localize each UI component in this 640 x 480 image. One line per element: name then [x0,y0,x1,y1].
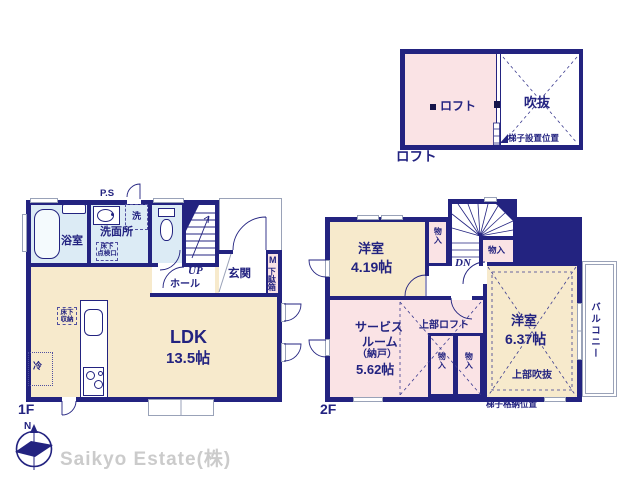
f1-entrance-label: 玄関 [228,268,251,280]
f2-closet-a-label: 物入 [433,227,441,245]
door-gap-entrance [233,250,266,255]
f1-floor-storage-line2: 収納 [61,316,74,323]
f2-service-line3: （納戸） [357,350,397,361]
f2-upper-void-label: 上部吹抜 [512,371,552,382]
door-gap-ldk-bottom [62,397,76,403]
f2-bedroom2-label: 洋室 [511,314,537,328]
f2-service-line4: 5.62帖 [356,363,394,377]
compass-icon [15,424,53,470]
window-toilet-top [153,198,184,203]
kitchen-sink [84,309,103,336]
window-f2-left-1 [325,260,330,277]
door-gap-bedroom2 [483,262,487,284]
window-balcony-door [577,303,582,360]
f1-floor-storage-label: 床下 収納 [57,310,77,324]
window-bedroom2-bottom [544,397,566,402]
loft-room-label: ロフト [440,100,476,113]
window-ldk-right-2 [281,343,286,362]
bath-counter [62,204,86,214]
floor-plan-page: ロフト 吹抜 梯子設置位置 ロフト P.S 浴室 洗 洗面所 床下 点検口 UP… [0,0,640,480]
f1-hatch-line2: 点検口 [97,250,117,257]
f1-shoebox-label: 下駄箱 [267,267,275,291]
f2-balcony-label: バルコニー [589,302,599,360]
bathtub [34,209,60,259]
window-bath-left [22,214,27,252]
f2-service-line2: ルーム [362,336,398,349]
f1-porch [219,198,282,251]
stove-burner-3 [98,371,103,376]
window-bedroom1-top-1 [357,215,379,220]
toilet-tank [158,208,175,217]
f2-service-line1: サービス [355,321,403,334]
window-bath-top [30,198,58,203]
door-gap-service [451,296,472,300]
toilet-bowl [160,219,173,241]
stove-burner-2 [94,380,103,389]
loft-caption: ロフト [396,150,437,164]
f1-fridge-label: 冷 [33,362,42,371]
f2-bedroom1-label: 洋室 [358,242,384,256]
door-gap-bedroom1 [425,276,429,296]
f1-caption: 1F [18,402,34,417]
window-f2-left-2 [325,339,330,356]
door-gap-ps [127,199,141,204]
f1-staircase [186,205,215,263]
window-stair-top [484,197,497,202]
door-gap-hall [158,263,182,267]
window-bedroom1-top-2 [381,215,403,220]
f2-bedroom2-size: 6.37帖 [505,332,546,347]
compass-north-label: N [24,422,31,433]
f1-hall-label: ホール [170,280,200,291]
f1-ldk-size: 13.5帖 [166,351,210,367]
f1-ldk-label: LDK [170,328,207,347]
f1-washroom-label: 洗面所 [100,227,133,239]
f2-closet-b-label: 物入 [488,246,505,255]
f1-hatch-label: 床下 点検口 [96,244,118,258]
f1-bath-label: 浴室 [61,236,83,248]
f2-closet-c-label: 物入 [437,352,445,370]
wash-basin-faucet [111,213,114,216]
f2-caption: 2F [320,402,336,417]
f2-dn-label: DN [455,258,471,270]
f2-ladder-note: 梯子格納位置 [486,400,537,409]
f1-ps-label: P.S [100,189,114,199]
window-ldk-right-1 [281,303,286,322]
loft-void-label: 吹抜 [524,96,550,110]
f2-closet-d-label: 物入 [464,352,472,370]
f2-bedroom1-size: 4.19帖 [351,260,392,275]
f1-wall-hall-ldk [150,293,282,297]
f2-upper-loft-label: 上部ロフト [419,321,469,332]
f2-corridor [429,266,483,296]
loft-ladder-note: 梯子設置位置 [508,134,559,143]
company-name: Saikyo Estate(株) [60,444,231,471]
window-ldk-bottom-large [148,399,214,416]
f2-stair-upper [452,204,513,236]
window-service-bottom [353,397,383,402]
f1-meter-label: M [269,256,277,265]
stove-burner-1 [86,371,95,380]
f1-laundry-label: 洗 [132,212,141,221]
f1-up-label: UP [188,266,203,278]
